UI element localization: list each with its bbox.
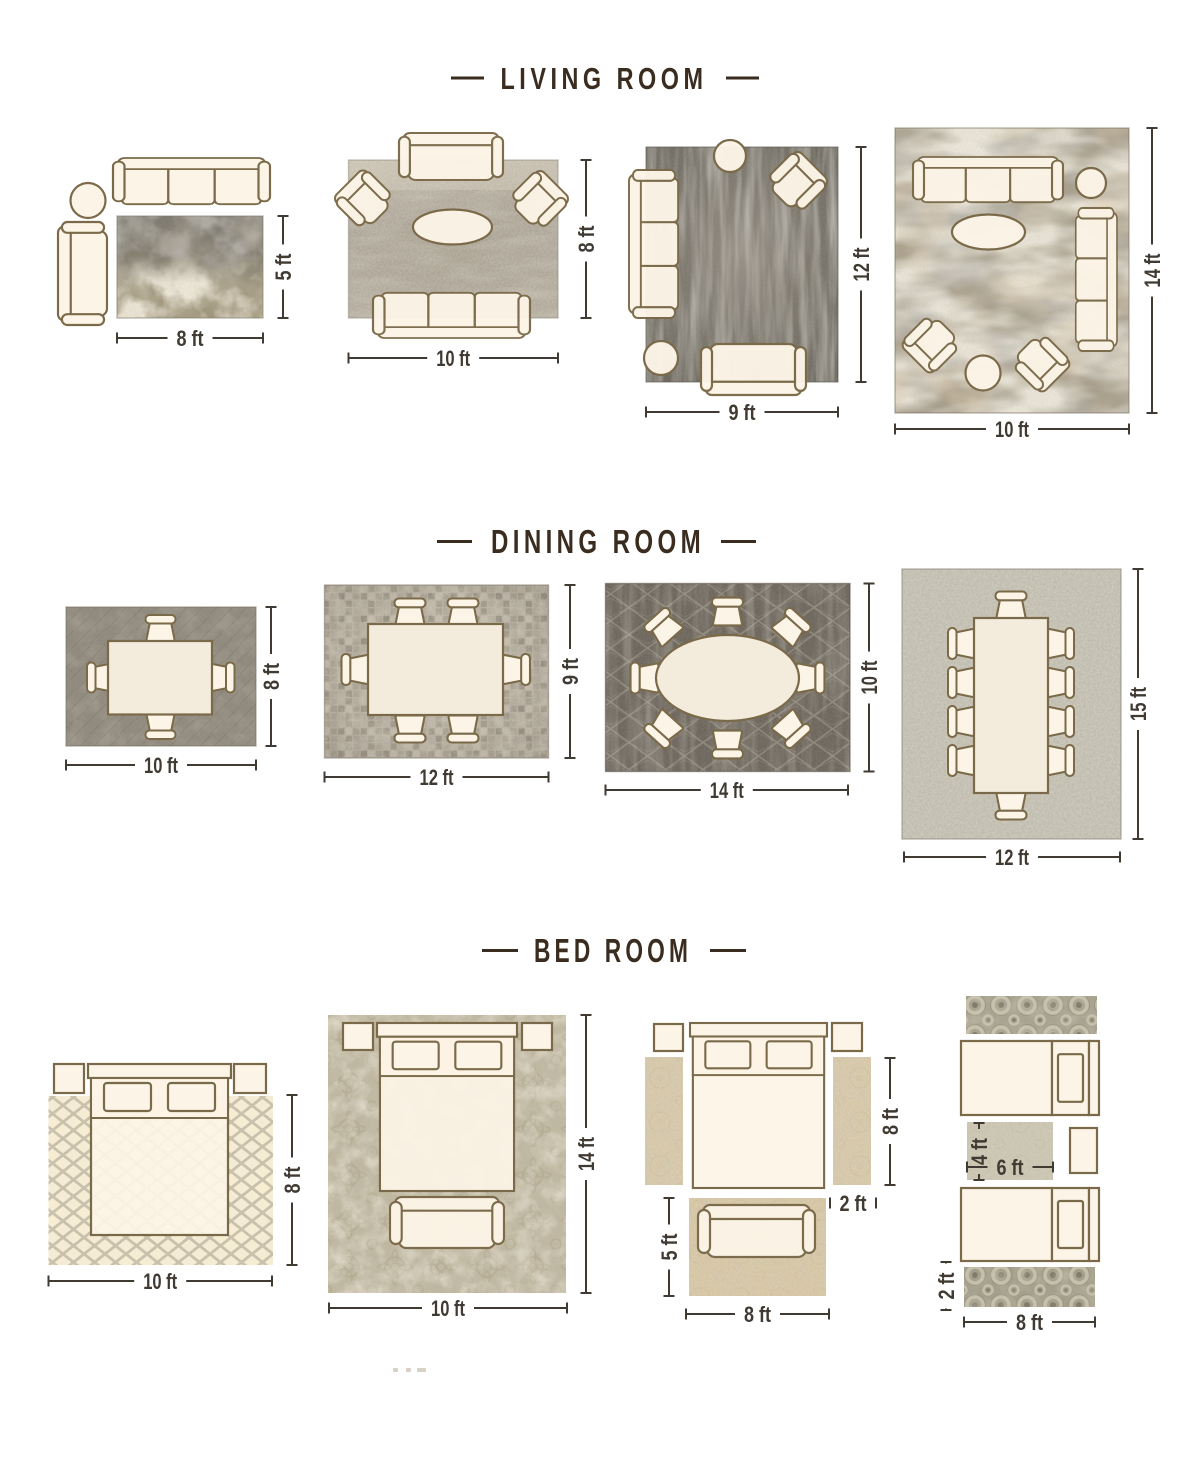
svg-text:8 ft: 8 ft xyxy=(744,1302,772,1327)
svg-text:12 ft: 12 ft xyxy=(995,845,1029,870)
svg-text:10 ft: 10 ft xyxy=(857,660,882,694)
svg-text:LIVING ROOM: LIVING ROOM xyxy=(501,61,708,96)
svg-text:8 ft: 8 ft xyxy=(574,225,599,253)
svg-text:10 ft: 10 ft xyxy=(144,753,178,778)
svg-text:14 ft: 14 ft xyxy=(1140,253,1165,287)
svg-text:BED ROOM: BED ROOM xyxy=(534,932,692,969)
svg-text:4 ft: 4 ft xyxy=(967,1137,992,1165)
svg-text:8 ft: 8 ft xyxy=(1016,1310,1044,1335)
svg-text:8 ft: 8 ft xyxy=(878,1107,903,1135)
svg-text:10 ft: 10 ft xyxy=(431,1296,465,1321)
svg-text:9 ft: 9 ft xyxy=(558,657,583,685)
svg-text:2 ft: 2 ft xyxy=(934,1272,959,1300)
svg-text:8 ft: 8 ft xyxy=(280,1166,305,1194)
svg-text:DINING ROOM: DINING ROOM xyxy=(491,523,705,560)
svg-text:10 ft: 10 ft xyxy=(436,346,470,371)
svg-text:15 ft: 15 ft xyxy=(1126,687,1151,721)
svg-text:10 ft: 10 ft xyxy=(995,417,1029,442)
svg-text:9 ft: 9 ft xyxy=(729,400,757,425)
svg-text:6 ft: 6 ft xyxy=(997,1155,1025,1180)
svg-text:5 ft: 5 ft xyxy=(271,253,296,281)
svg-text:5 ft: 5 ft xyxy=(657,1233,682,1261)
svg-text:12 ft: 12 ft xyxy=(420,765,454,790)
svg-text:14 ft: 14 ft xyxy=(574,1137,599,1171)
svg-text:8 ft: 8 ft xyxy=(177,326,205,351)
svg-text:12 ft: 12 ft xyxy=(849,247,874,281)
svg-text:2 ft: 2 ft xyxy=(840,1191,868,1216)
svg-text:10 ft: 10 ft xyxy=(143,1269,177,1294)
svg-text:14 ft: 14 ft xyxy=(710,778,744,803)
svg-text:8 ft: 8 ft xyxy=(259,662,284,690)
